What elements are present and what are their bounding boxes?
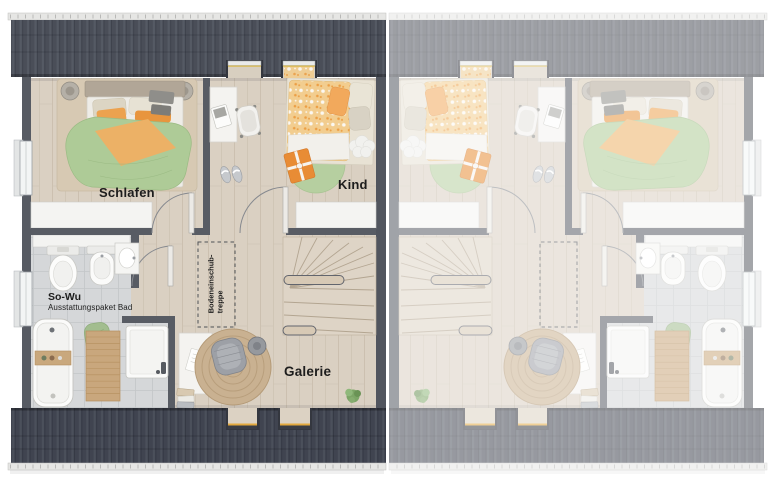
floorplan-svg (0, 0, 775, 493)
floorplan-canvas: Schlafen Kind So-Wu Ausstattungspaket Ba… (0, 0, 775, 493)
left-unit (8, 13, 386, 474)
fade-overlay (387, 0, 775, 493)
